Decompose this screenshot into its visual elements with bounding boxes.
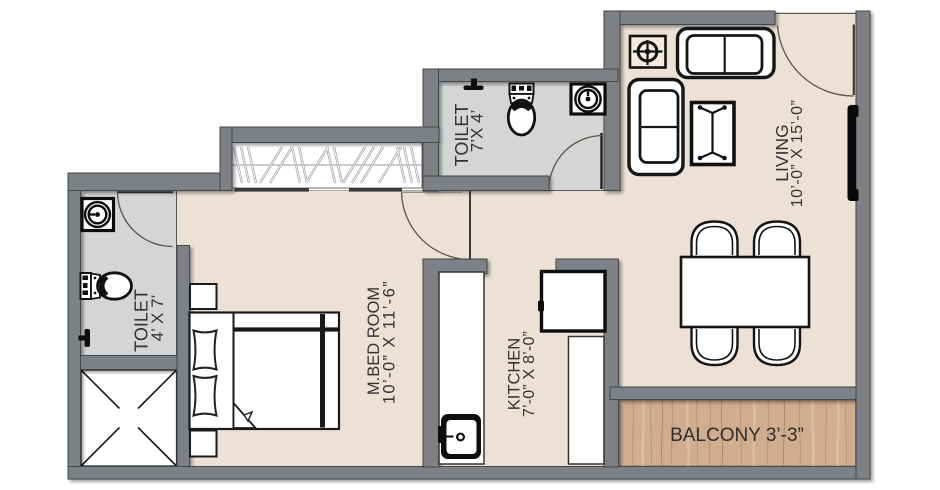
svg-text:7’-0” X 8’-0”: 7’-0” X 8’-0”: [521, 331, 538, 417]
svg-text:7’X 4’: 7’X 4’: [468, 110, 487, 153]
svg-text:10’-0” X 15’-0”: 10’-0” X 15’-0”: [789, 100, 806, 207]
svg-text:4’ X 7’: 4’ X 7’: [148, 295, 167, 342]
svg-text:BALCONY 3’-3”: BALCONY 3’-3”: [670, 425, 804, 446]
svg-text:10’-0” X 11’-6”: 10’-0” X 11’-6”: [381, 280, 399, 404]
